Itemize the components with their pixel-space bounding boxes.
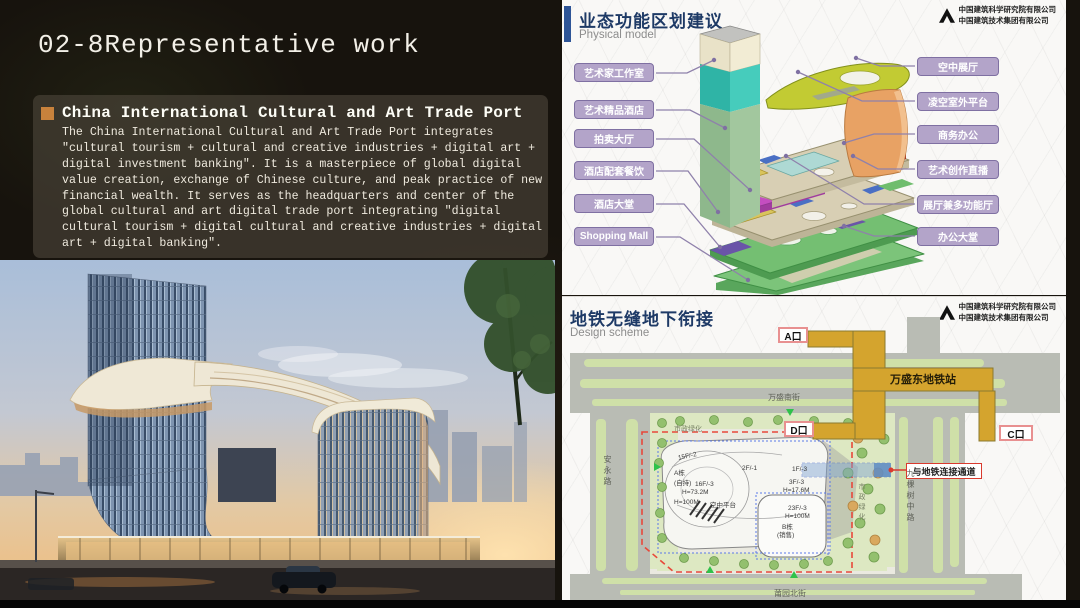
right-tower bbox=[312, 398, 435, 560]
green-right-label: 市政绿化 bbox=[856, 483, 866, 523]
design-scheme-panel: 地铁无缝地下衔接 Design scheme 中国建筑科学研究院有限公司 中国建… bbox=[562, 296, 1066, 601]
section-heading: China International Cultural and Art Tra… bbox=[62, 104, 523, 122]
road-south-label: 莆园北街 bbox=[774, 588, 806, 599]
label-business-office: 商务办公 bbox=[917, 125, 999, 144]
road-west-label: 安永路 bbox=[602, 455, 613, 488]
bldg-note: 2F/-1 bbox=[742, 465, 757, 472]
label-aerial-platform: 凌空室外平台 bbox=[917, 92, 999, 111]
label-artist-studio: 艺术家工作室 bbox=[574, 63, 654, 82]
label-office-lobby: 办公大堂 bbox=[917, 227, 999, 246]
physical-model-panel: 业态功能区划建议 Physical model 中国建筑科学研究院有限公司 中国… bbox=[562, 0, 1066, 295]
bldg-note: 16F/-3 bbox=[695, 481, 714, 488]
green-left-label: 市政绿化 bbox=[674, 424, 702, 434]
building-photo bbox=[0, 260, 555, 600]
bldg-note: (销售) bbox=[777, 529, 794, 539]
road-east-label: 九棵树中路 bbox=[905, 469, 916, 524]
label-art-livestream: 艺术创作直播 bbox=[917, 160, 999, 179]
bldg-note: (自持) bbox=[674, 477, 691, 487]
bldg-note: 1F/-3 bbox=[792, 466, 807, 473]
bldg-note: H=100M bbox=[785, 513, 810, 520]
bldg-note: H=17.6M bbox=[783, 487, 810, 494]
bldg-note: 23F/-3 bbox=[788, 505, 807, 512]
bullet-square-icon bbox=[41, 107, 54, 120]
page-title: 02-8Representative work bbox=[38, 30, 420, 60]
label-multifunction-hall: 展厅兼多功能厅 bbox=[917, 195, 999, 214]
bldg-note: 空中平台 bbox=[710, 499, 736, 509]
bottom-border bbox=[0, 600, 1080, 608]
bldg-note: 3F/-3 bbox=[789, 479, 804, 486]
section-body: The China International Cultural and Art… bbox=[62, 125, 544, 252]
station-label: 万盛东地铁站 bbox=[858, 371, 988, 387]
label-shopping-mall: Shopping Mall bbox=[574, 227, 654, 246]
label-sky-exhibition: 空中展厅 bbox=[917, 57, 999, 76]
label-hotel-dining: 酒店配套餐饮 bbox=[574, 161, 654, 180]
label-hotel-lobby: 酒店大堂 bbox=[574, 194, 654, 213]
label-auction-hall: 拍卖大厅 bbox=[574, 129, 654, 148]
site-plan-figure bbox=[562, 317, 1066, 601]
road-north-label: 万盛南街 bbox=[742, 392, 826, 403]
exit-a-label: A口 bbox=[778, 327, 808, 343]
slide: 02-8Representative work China Internatio… bbox=[0, 0, 1080, 608]
bldg-note: H=73.2M bbox=[682, 489, 709, 496]
car-silhouette bbox=[28, 578, 74, 590]
exit-d-label: D口 bbox=[784, 421, 814, 437]
bldg-note: A栋 bbox=[674, 467, 685, 477]
metro-connection-label: 与地铁连接通道 bbox=[906, 463, 982, 479]
midrise-building bbox=[218, 448, 276, 502]
exit-c-label: C口 bbox=[999, 425, 1033, 441]
logo-line1: 中国建筑科学研究院有限公司 bbox=[959, 302, 1057, 313]
metro-passage bbox=[802, 463, 906, 477]
bldg-note: H=100M bbox=[674, 499, 699, 506]
building-photo-scene bbox=[0, 260, 555, 600]
label-boutique-hotel: 艺术精品酒店 bbox=[574, 100, 654, 119]
description-panel: China International Cultural and Art Tra… bbox=[33, 95, 548, 258]
